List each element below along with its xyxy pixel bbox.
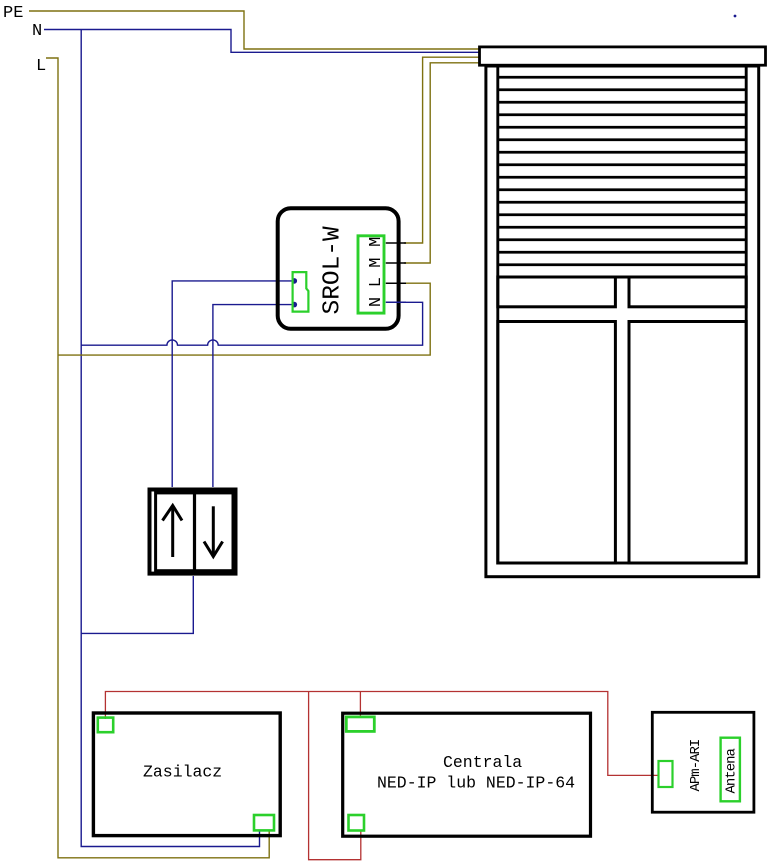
svg-text:Centrala: Centrala bbox=[443, 753, 522, 772]
svg-text:N: N bbox=[32, 22, 42, 41]
svg-text:Antena: Antena bbox=[724, 748, 740, 793]
svg-text:APm-ARI: APm-ARI bbox=[688, 740, 704, 792]
svg-text:Zasilacz: Zasilacz bbox=[143, 763, 222, 782]
svg-text:SROL-W: SROL-W bbox=[320, 226, 347, 315]
svg-text:L: L bbox=[367, 277, 386, 287]
svg-text:PE: PE bbox=[3, 4, 23, 23]
svg-text:M: M bbox=[367, 237, 386, 247]
svg-text:N: N bbox=[367, 297, 386, 307]
svg-text:L: L bbox=[36, 57, 46, 76]
svg-text:M: M bbox=[367, 257, 386, 267]
svg-text:NED-IP lub NED-IP-64: NED-IP lub NED-IP-64 bbox=[377, 774, 575, 793]
